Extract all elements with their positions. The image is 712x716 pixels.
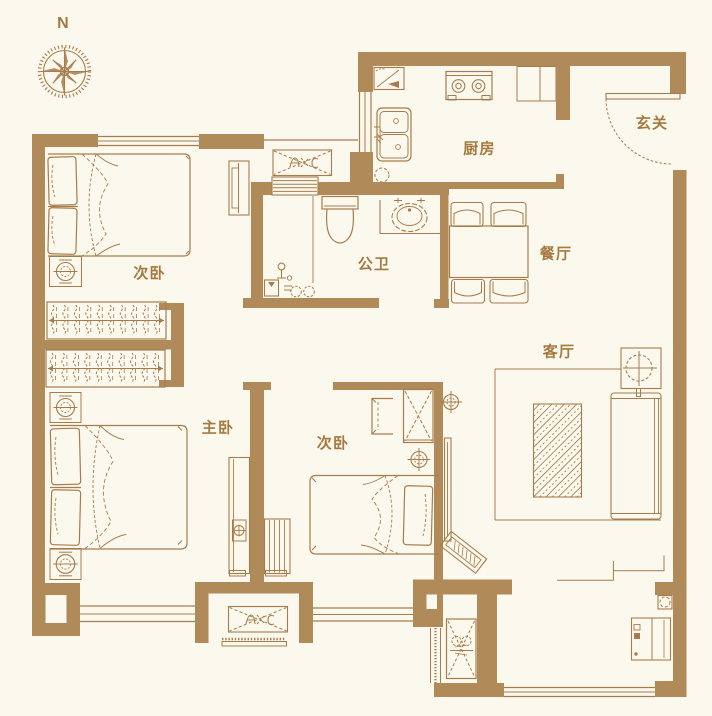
svg-text:N: N	[57, 15, 70, 32]
svg-text:客厅: 客厅	[542, 343, 575, 361]
svg-text:餐厅: 餐厅	[540, 245, 572, 263]
svg-text:主卧: 主卧	[202, 419, 234, 437]
svg-text:次卧: 次卧	[133, 264, 165, 282]
svg-text:厨房: 厨房	[463, 140, 495, 158]
svg-text:公卫: 公卫	[358, 256, 390, 273]
svg-text:次卧: 次卧	[317, 434, 349, 452]
svg-text:玄关: 玄关	[636, 114, 668, 132]
